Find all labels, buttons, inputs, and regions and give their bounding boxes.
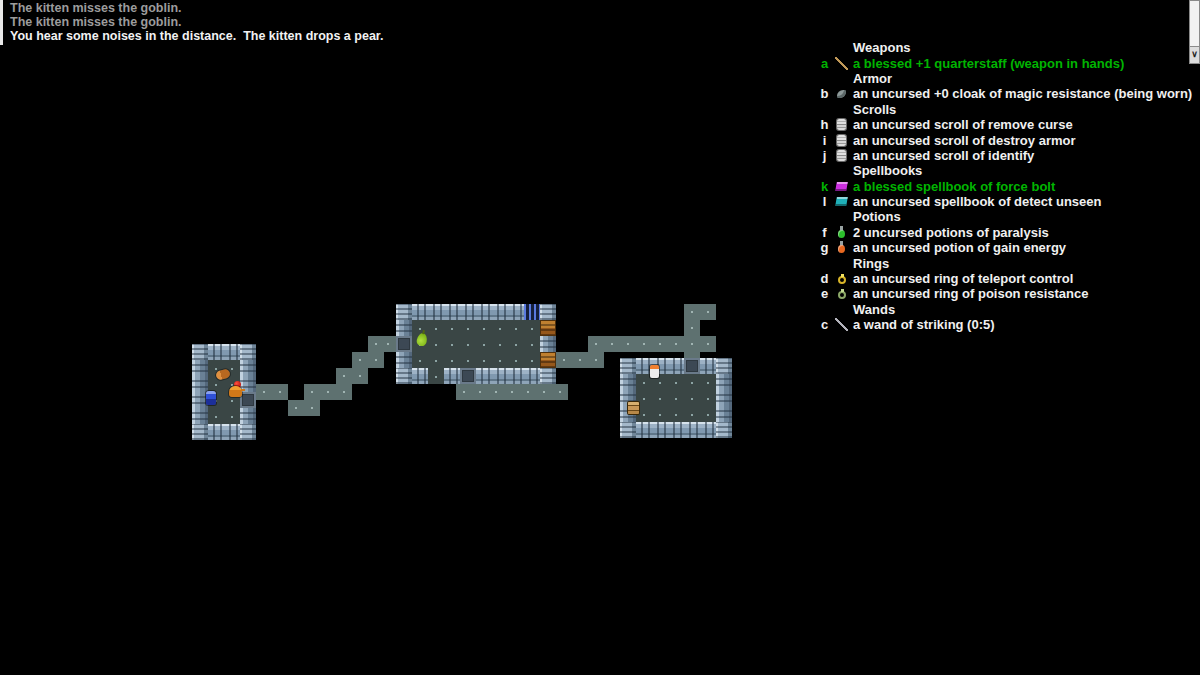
door-gray-tile[interactable] (240, 392, 256, 408)
corridor-tile[interactable] (684, 304, 700, 320)
floor-tile[interactable] (652, 390, 668, 406)
floor-tile[interactable] (428, 352, 444, 368)
item-letter: i (818, 133, 831, 148)
corridor-tile[interactable] (504, 384, 520, 400)
floor-tile[interactable] (700, 374, 716, 390)
wall-tile[interactable] (240, 408, 256, 424)
wall-corner-tile[interactable] (240, 344, 256, 360)
item-label: an uncursed ring of teleport control (849, 271, 1073, 286)
item-label: an uncursed scroll of remove curse (849, 117, 1073, 132)
floor-tile[interactable] (444, 320, 460, 336)
inventory-item: ban uncursed +0 cloak of magic resistanc… (818, 86, 1192, 101)
door-open-tile[interactable] (540, 352, 556, 368)
book-magenta-icon (834, 179, 849, 194)
corridor-tile[interactable] (700, 304, 716, 320)
floor-tile[interactable] (524, 320, 540, 336)
wall-tile[interactable] (396, 352, 412, 368)
wall-tile[interactable] (716, 390, 732, 406)
floor-tile[interactable] (668, 390, 684, 406)
section-title: Spellbooks (849, 163, 922, 178)
item-letter: a (818, 56, 831, 71)
corridor-tile[interactable] (272, 384, 288, 400)
inventory-section-header: Armor (818, 71, 1192, 86)
wall-tile[interactable] (192, 408, 208, 424)
inventory-item: lan uncursed spellbook of detect unseen (818, 194, 1192, 209)
wall-tile[interactable] (508, 304, 524, 320)
door-open-tile[interactable] (540, 320, 556, 336)
inventory-section-header: Wands (818, 302, 1192, 317)
book-cyan-icon (834, 194, 849, 209)
corridor-tile[interactable] (352, 368, 368, 384)
corridor-tile[interactable] (288, 400, 304, 416)
item-letter: h (818, 117, 831, 132)
scrollbar-down-button[interactable]: ∨ (1189, 46, 1200, 64)
section-title: Rings (849, 256, 889, 271)
floor-tile[interactable] (492, 320, 508, 336)
wall-corner-tile[interactable] (192, 344, 208, 360)
inventory-item: f2 uncursed potions of paralysis (818, 225, 1192, 240)
corridor-tile[interactable] (520, 384, 536, 400)
corridor-tile[interactable] (336, 384, 352, 400)
wall-tile[interactable] (492, 368, 508, 384)
inventory-item: gan uncursed potion of gain energy (818, 240, 1192, 255)
inventory-item: ian uncursed scroll of destroy armor (818, 132, 1192, 147)
kitten-sprite[interactable] (229, 386, 242, 397)
wall-tile[interactable] (396, 320, 412, 336)
wall-tile[interactable] (208, 344, 224, 360)
floor-tile[interactable] (492, 352, 508, 368)
corridor-tile[interactable] (368, 352, 384, 368)
wall-tile[interactable] (460, 304, 476, 320)
wall-tile[interactable] (476, 368, 492, 384)
item-label: an uncursed potion of gain energy (849, 240, 1066, 255)
section-title: Scrolls (849, 102, 896, 117)
corridor-tile[interactable] (636, 336, 652, 352)
wall-tile[interactable] (240, 360, 256, 376)
corridor-tile[interactable] (456, 384, 472, 400)
wall-corner-tile[interactable] (620, 358, 636, 374)
corridor-tile[interactable] (320, 384, 336, 400)
item-label: an uncursed spellbook of detect unseen (849, 194, 1102, 209)
section-title: Weapons (849, 40, 911, 55)
corridor-tile[interactable] (304, 384, 320, 400)
wall-tile[interactable] (224, 344, 240, 360)
floor-tile[interactable] (652, 406, 668, 422)
inventory-section-header: Scrolls (818, 102, 1192, 117)
quarterstaff-icon (834, 56, 849, 71)
corridor-tile[interactable] (336, 368, 352, 384)
wall-corner-tile[interactable] (716, 358, 732, 374)
floor-tile[interactable] (508, 336, 524, 352)
floor-tile[interactable] (460, 336, 476, 352)
floor-tile[interactable] (412, 352, 428, 368)
corridor-tile[interactable] (588, 336, 604, 352)
wall-tile[interactable] (476, 304, 492, 320)
door-gray-tile[interactable] (460, 368, 476, 384)
floor-tile[interactable] (668, 406, 684, 422)
corridor-tile[interactable] (588, 352, 604, 368)
inventory-item: ean uncursed ring of poison resistance (818, 286, 1192, 301)
item-letter: c (818, 317, 831, 332)
wall-tile[interactable] (444, 304, 460, 320)
item-letter: k (818, 179, 831, 194)
player-sprite[interactable] (206, 391, 216, 405)
inventory-panel: Weaponsaa blessed +1 quarterstaff (weapo… (818, 40, 1192, 332)
wall-tile[interactable] (684, 422, 700, 438)
wall-tile[interactable] (668, 422, 684, 438)
nethack-screen: The kitten misses the goblin.The kitten … (0, 0, 1200, 675)
wall-tile[interactable] (716, 374, 732, 390)
corridor-tile[interactable] (620, 336, 636, 352)
corridor-tile[interactable] (700, 336, 716, 352)
wall-corner-tile[interactable] (396, 304, 412, 320)
corridor-tile[interactable] (552, 384, 568, 400)
wall-tile[interactable] (700, 358, 716, 374)
item-letter: f (818, 225, 831, 240)
floor-tile[interactable] (460, 320, 476, 336)
wall-tile[interactable] (492, 304, 508, 320)
floor-tile[interactable] (700, 390, 716, 406)
floor-tile[interactable] (492, 336, 508, 352)
corridor-tile[interactable] (684, 320, 700, 336)
item-label: a blessed spellbook of force bolt (849, 179, 1055, 194)
floor-tile[interactable] (524, 352, 540, 368)
wall-tile[interactable] (652, 422, 668, 438)
wall-corner-tile[interactable] (540, 368, 556, 384)
wall-corner-tile[interactable] (240, 424, 256, 440)
wall-tile[interactable] (444, 368, 460, 384)
scroll-icon (834, 148, 849, 163)
corridor-tile[interactable] (536, 384, 552, 400)
floor-tile[interactable] (684, 390, 700, 406)
item-letter: l (818, 194, 831, 209)
floor-tile[interactable] (428, 320, 444, 336)
item-label: an uncursed scroll of destroy armor (849, 133, 1076, 148)
door-gray-tile[interactable] (684, 358, 700, 374)
floor-tile[interactable] (508, 352, 524, 368)
wall-corner-tile[interactable] (620, 422, 636, 438)
chest-sprite[interactable] (628, 402, 639, 414)
figure-sprite[interactable] (650, 365, 659, 378)
cloak-icon (834, 86, 849, 101)
ring-gold-icon (834, 271, 849, 286)
floor-tile[interactable] (444, 336, 460, 352)
item-label: an uncursed scroll of identify (849, 148, 1034, 163)
wall-tile[interactable] (192, 376, 208, 392)
wall-tile[interactable] (716, 406, 732, 422)
inventory-section-header: Potions (818, 209, 1192, 224)
floor-tile[interactable] (684, 374, 700, 390)
chevron-down-icon: ∨ (1191, 49, 1198, 59)
floor-tile[interactable] (508, 320, 524, 336)
inventory-section-header: Weapons (818, 40, 1192, 55)
floor-tile[interactable] (700, 406, 716, 422)
wall-tile[interactable] (636, 422, 652, 438)
wand-icon (834, 317, 849, 332)
item-label: 2 uncursed potions of paralysis (849, 225, 1049, 240)
inventory-section-header: Spellbooks (818, 163, 1192, 178)
item-label: an uncursed ring of poison resistance (849, 286, 1089, 301)
wall-tile[interactable] (508, 368, 524, 384)
floor-tile[interactable] (224, 408, 240, 424)
item-letter: b (818, 86, 831, 101)
item-letter: e (818, 286, 831, 301)
inventory-item: ca wand of striking (0:5) (818, 317, 1192, 332)
item-letter: g (818, 240, 831, 255)
wall-corner-tile[interactable] (396, 368, 412, 384)
potion-green-icon (834, 225, 849, 240)
floor-tile[interactable] (476, 352, 492, 368)
item-label: an uncursed +0 cloak of magic resistance… (849, 86, 1192, 101)
wall-corner-tile[interactable] (192, 424, 208, 440)
corridor-tile[interactable] (488, 384, 504, 400)
corridor-tile[interactable] (556, 352, 572, 368)
inventory-item: han uncursed scroll of remove curse (818, 117, 1192, 132)
item-letter: j (818, 148, 831, 163)
section-title: Armor (849, 71, 892, 86)
wall-tile[interactable] (192, 360, 208, 376)
wall-corner-tile[interactable] (540, 304, 556, 320)
wall-tile[interactable] (428, 304, 444, 320)
wall-tile[interactable] (208, 424, 224, 440)
floor-tile[interactable] (428, 336, 444, 352)
scrollbar[interactable]: ∨ (1189, 0, 1200, 63)
wall-tile[interactable] (524, 368, 540, 384)
floor-tile[interactable] (444, 352, 460, 368)
inventory-item: ka blessed spellbook of force bolt (818, 179, 1192, 194)
floor-tile[interactable] (668, 374, 684, 390)
inventory-item: dan uncursed ring of teleport control (818, 271, 1192, 286)
wall-tile[interactable] (700, 422, 716, 438)
floor-tile[interactable] (684, 406, 700, 422)
corridor-tile[interactable] (472, 384, 488, 400)
wall-tile[interactable] (668, 358, 684, 374)
corridor-tile[interactable] (652, 336, 668, 352)
floor-tile[interactable] (476, 320, 492, 336)
door-gray-tile[interactable] (396, 336, 412, 352)
scroll-icon (834, 117, 849, 132)
floor-tile[interactable] (476, 336, 492, 352)
wall-tile[interactable] (540, 336, 556, 352)
wall-tile[interactable] (224, 424, 240, 440)
item-letter: d (818, 271, 831, 286)
floor-tile[interactable] (460, 352, 476, 368)
item-label: a blessed +1 quarterstaff (weapon in han… (849, 56, 1124, 71)
inventory-item: jan uncursed scroll of identify (818, 148, 1192, 163)
corridor-tile[interactable] (304, 400, 320, 416)
corridor-tile[interactable] (352, 352, 368, 368)
corridor-tile[interactable] (668, 336, 684, 352)
section-title: Potions (849, 209, 901, 224)
corridor-tile[interactable] (684, 336, 700, 352)
floor-tile[interactable] (208, 408, 224, 424)
ring-green-icon (834, 286, 849, 301)
corridor-tile[interactable] (572, 352, 588, 368)
wall-corner-tile[interactable] (716, 422, 732, 438)
section-title: Wands (849, 302, 895, 317)
gap-tile[interactable] (428, 368, 444, 384)
potion-orange-icon (834, 240, 849, 255)
wall-tile[interactable] (412, 304, 428, 320)
corridor-tile[interactable] (380, 336, 396, 352)
wall-tile[interactable] (620, 374, 636, 390)
scroll-icon (834, 133, 849, 148)
wall-tile[interactable] (412, 368, 428, 384)
item-label: a wand of striking (0:5) (849, 317, 995, 332)
corridor-tile[interactable] (604, 336, 620, 352)
corridor-tile[interactable] (256, 384, 272, 400)
scrollbar-thumb[interactable] (1189, 0, 1200, 47)
floor-tile[interactable] (524, 336, 540, 352)
bars-tile[interactable] (524, 304, 540, 320)
inventory-item: aa blessed +1 quarterstaff (weapon in ha… (818, 55, 1192, 70)
inventory-section-header: Rings (818, 255, 1192, 270)
